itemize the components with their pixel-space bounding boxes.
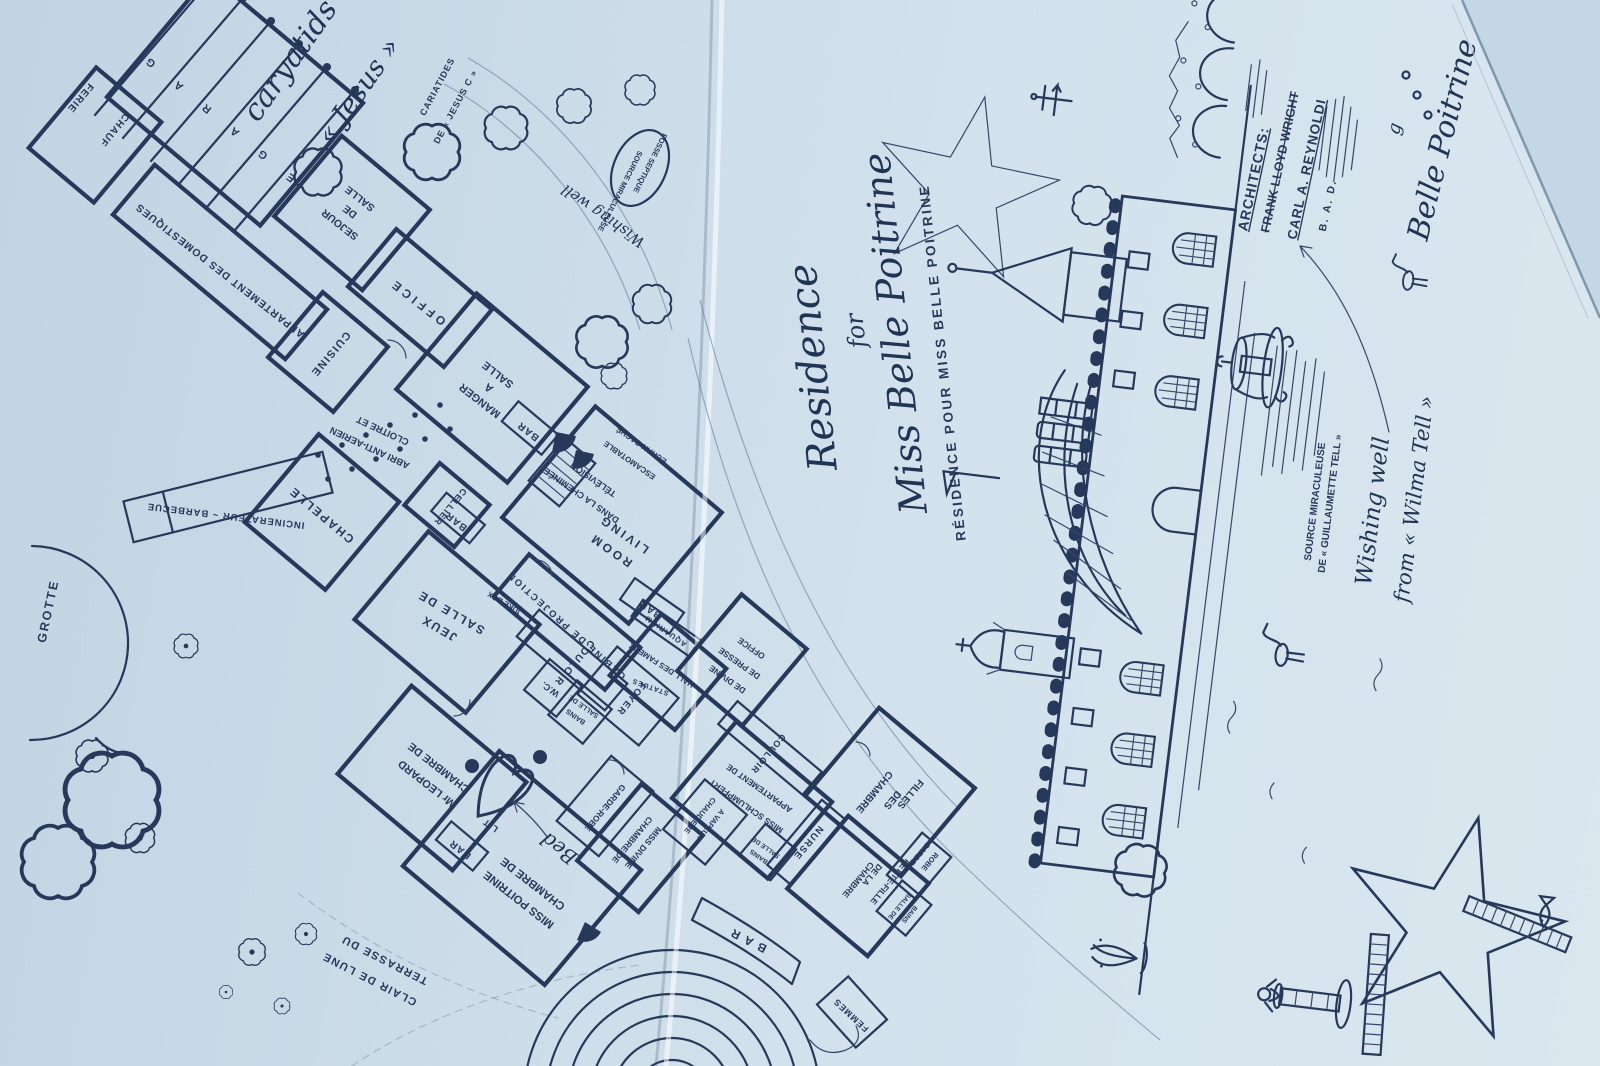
left-page-labels: caryatids « Jesus » CARIATIDES DE « JESU…	[35, 0, 696, 1008]
label-manger-2: A	[482, 380, 496, 394]
label-garage-g2: G	[256, 147, 270, 162]
book-artwork: caryatids « Jesus » CARIATIDES DE « JESU…	[0, 0, 1600, 1066]
spray-fountain	[1089, 937, 1148, 974]
label-chaufferie-1: CHAUF	[97, 111, 131, 149]
label-chapelle: CHAPELLE	[286, 484, 357, 547]
label-terrasse-1: TERRASSE DU	[339, 933, 429, 987]
star-swimming-pool	[1272, 776, 1600, 1066]
caryatides-script-2: « Jesus »	[311, 32, 406, 150]
label-manger-3: MANGER	[457, 381, 503, 421]
wishing-caption-2: from « Wilma Tell »	[1389, 394, 1438, 605]
label-garage-a1: A	[172, 78, 186, 92]
label-sejour-2: DE	[341, 202, 360, 220]
signature-flourish: g	[1383, 121, 1406, 137]
title-script-2: for	[840, 311, 872, 352]
fish	[1537, 896, 1555, 927]
label-grotte: GROTTE	[35, 578, 62, 644]
flourish-dot	[1403, 72, 1410, 79]
statue	[1255, 970, 1353, 1029]
book-photo: caryatids « Jesus » CARIATIDES DE « JESU…	[0, 0, 1600, 1066]
right-page-labels: Residence for Miss Belle Poitrine RÉSIDE…	[682, 36, 1485, 1034]
wishing-well-arrow	[1300, 246, 1389, 432]
flourish-dot	[1425, 112, 1432, 119]
label-office: OFFICE	[386, 276, 448, 329]
label-garage-a2: A	[228, 124, 242, 138]
label-cuisine: CUISINE	[308, 329, 353, 379]
fountain	[1212, 321, 1294, 409]
title-script-1: Residence	[779, 261, 847, 474]
signature-belle-poitrine: Belle Poitrine	[1401, 36, 1485, 245]
flourish-dot	[1414, 92, 1421, 99]
label-bar-1: BAR	[515, 419, 541, 443]
label-garage-g1: G	[144, 55, 158, 70]
architects-credentials: B. A. D.	[1317, 178, 1340, 232]
wishing-caption-1: Wishing well	[1351, 435, 1395, 586]
label-presse-1: OFFICE	[735, 635, 767, 661]
label-bed-script: Bed	[536, 827, 583, 870]
label-garage-r: R	[200, 101, 214, 115]
star-outline	[883, 97, 1060, 277]
weathervane	[1029, 82, 1073, 117]
